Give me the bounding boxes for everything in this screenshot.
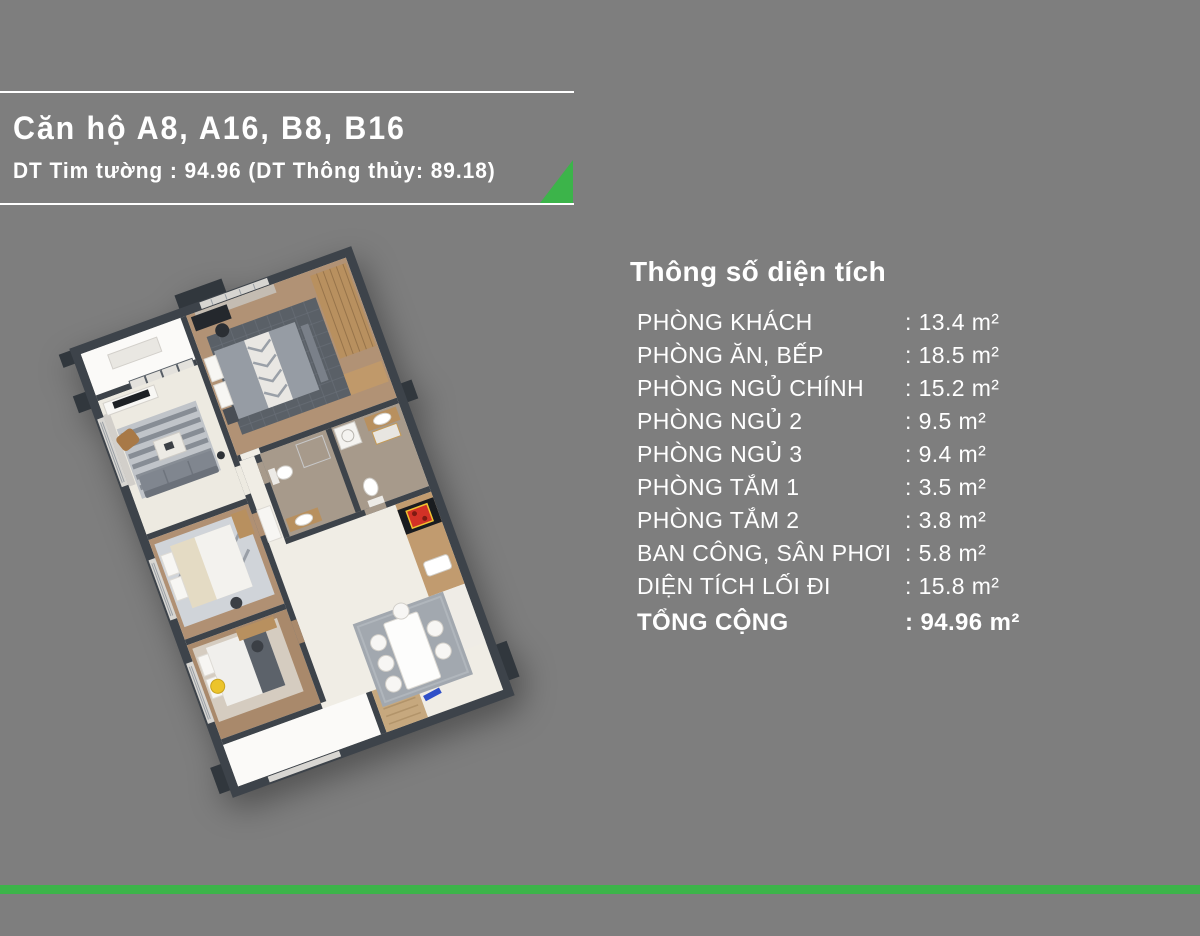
room-label: PHÒNG ĂN, BẾP [637,339,905,372]
green-corner-triangle [540,160,573,203]
room-label: PHÒNG TẮM 2 [637,504,905,537]
page-subtitle-text: DT Tim tường : 94.96 (DT Thông thủy: 89.… [13,158,496,184]
room-label: BAN CÔNG, SÂN PHƠI [637,537,905,570]
room-area-value: : 13.4 m² [905,306,999,339]
room-label: PHÒNG KHÁCH [637,306,905,339]
room-area-value: : 3.5 m² [905,471,986,504]
table-row: PHÒNG KHÁCH : 13.4 m² [637,306,1190,339]
header-bottom-rule [0,203,574,205]
page-title-text: Căn hộ A8, A16, B8, B16 [13,110,406,147]
table-row: PHÒNG NGỦ 2 : 9.5 m² [637,405,1190,438]
table-row: DIỆN TÍCH LỐI ĐI : 15.8 m² [637,570,1190,603]
table-row: PHÒNG NGỦ 3 : 9.4 m² [637,438,1190,471]
room-area-value: : 15.2 m² [905,372,999,405]
area-table: Thông số diện tích PHÒNG KHÁCH : 13.4 m²… [630,256,1190,642]
area-table-title: Thông số diện tích [630,256,1190,288]
room-label: PHÒNG TẮM 1 [637,471,905,504]
table-row: PHÒNG TẮM 2 : 3.8 m² [637,504,1190,537]
page-title: Căn hộ A8, A16, B8, B16 [13,110,427,147]
bottom-accent-bar [0,885,1200,894]
table-row: BAN CÔNG, SÂN PHƠI : 5.8 m² [637,537,1190,570]
infographic-page: Căn hộ A8, A16, B8, B16 DT Tim tường : 9… [0,0,1200,936]
room-label: DIỆN TÍCH LỐI ĐI [637,570,905,603]
area-table-rows: PHÒNG KHÁCH : 13.4 m² PHÒNG ĂN, BẾP : 18… [637,306,1190,642]
room-area-value: : 3.8 m² [905,504,986,537]
table-row: PHÒNG NGỦ CHÍNH : 15.2 m² [637,372,1190,405]
room-label: PHÒNG NGỦ CHÍNH [637,372,905,405]
table-row: PHÒNG ĂN, BẾP : 18.5 m² [637,339,1190,372]
table-row: PHÒNG TẮM 1 : 3.5 m² [637,471,1190,504]
total-value: : 94.96 m² [905,604,1020,642]
room-area-value: : 9.5 m² [905,405,986,438]
header-top-rule [0,91,574,93]
room-area-value: : 18.5 m² [905,339,999,372]
total-label: TỔNG CỘNG [637,604,905,642]
page-subtitle: DT Tim tường : 94.96 (DT Thông thủy: 89.… [13,158,521,184]
room-label: PHÒNG NGỦ 2 [637,405,905,438]
floor-plan-illustration [0,210,640,870]
table-total-row: TỔNG CỘNG : 94.96 m² [637,604,1190,642]
room-area-value: : 9.4 m² [905,438,986,471]
room-area-value: : 15.8 m² [905,570,999,603]
room-label: PHÒNG NGỦ 3 [637,438,905,471]
room-area-value: : 5.8 m² [905,537,986,570]
